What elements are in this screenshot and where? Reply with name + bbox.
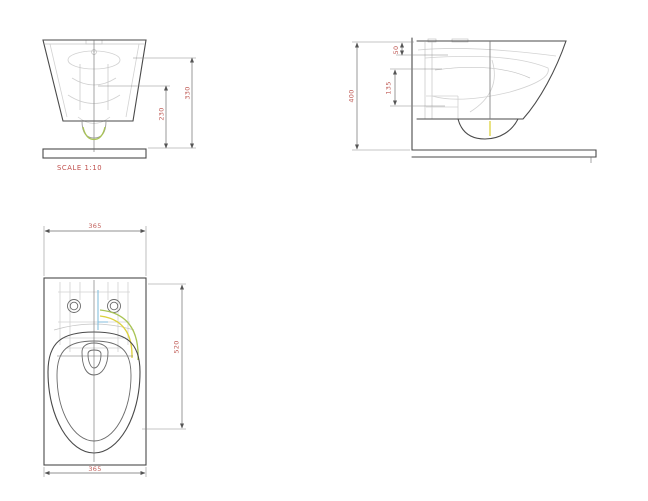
- plan-hole-right-inner: [110, 302, 118, 310]
- plan-width-bottom-label: 365: [88, 465, 101, 473]
- plan-depth-label: 520: [173, 340, 181, 353]
- side-top-offset-label: 50: [392, 46, 400, 55]
- plan-trap-inner: [88, 350, 101, 368]
- drawing-canvas: 230 330 SCALE 1:10 400 50: [0, 0, 648, 501]
- front-base-plate: [43, 149, 146, 158]
- front-height-inner-label: 230: [158, 107, 166, 120]
- side-hidden-inner: [435, 67, 530, 78]
- plan-ext-top: [44, 226, 146, 276]
- front-view: 230 330 SCALE 1:10: [43, 40, 196, 172]
- side-bowl-underside: [458, 119, 518, 139]
- side-hidden-back: [425, 42, 432, 119]
- plan-hole-left-outer: [68, 300, 81, 313]
- plan-view: 365 520 365: [44, 222, 186, 477]
- side-overall-height-label: 400: [348, 89, 356, 102]
- side-mid-span-label: 135: [385, 81, 393, 94]
- front-hidden-right-slant: [126, 44, 139, 117]
- plan-width-top-label: 365: [88, 222, 101, 230]
- technical-drawing: 230 330 SCALE 1:10 400 50: [0, 0, 648, 501]
- plan-hole-right-outer: [108, 300, 121, 313]
- scale-note: SCALE 1:10: [57, 164, 102, 172]
- side-view: 400 50 135: [348, 38, 597, 163]
- plan-hole-left-inner: [70, 302, 78, 310]
- plan-ext-depth: [142, 284, 186, 429]
- side-base-strip: [412, 150, 596, 157]
- front-height-outer-label: 330: [184, 86, 192, 99]
